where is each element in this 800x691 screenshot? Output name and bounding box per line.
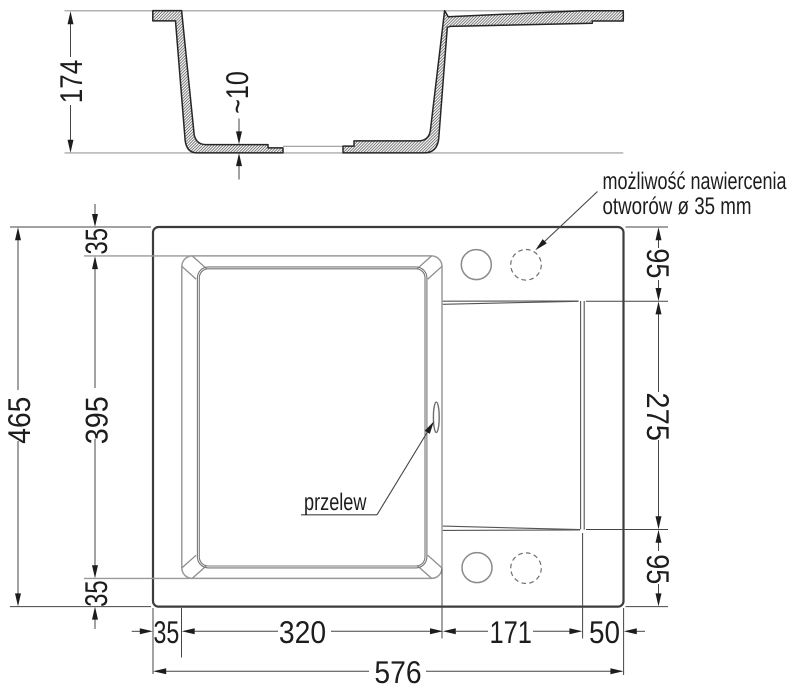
svg-text:35: 35 <box>154 614 180 650</box>
svg-text:576: 576 <box>374 654 421 690</box>
svg-text:możliwość nawiercenia: możliwość nawiercenia <box>603 168 787 195</box>
svg-text:275: 275 <box>640 392 676 441</box>
svg-text:171: 171 <box>489 614 532 650</box>
svg-text:465: 465 <box>1 397 37 444</box>
svg-text:320: 320 <box>279 614 326 650</box>
svg-text:~10: ~10 <box>219 71 255 114</box>
svg-text:35: 35 <box>78 580 114 607</box>
svg-text:przelew: przelew <box>304 489 367 516</box>
svg-text:35: 35 <box>79 228 114 255</box>
svg-text:95: 95 <box>640 554 676 584</box>
svg-text:95: 95 <box>640 248 676 278</box>
svg-text:otworów ø 35 mm: otworów ø 35 mm <box>603 193 752 220</box>
svg-text:395: 395 <box>79 396 115 444</box>
svg-text:50: 50 <box>589 614 620 650</box>
svg-text:174: 174 <box>53 60 89 103</box>
